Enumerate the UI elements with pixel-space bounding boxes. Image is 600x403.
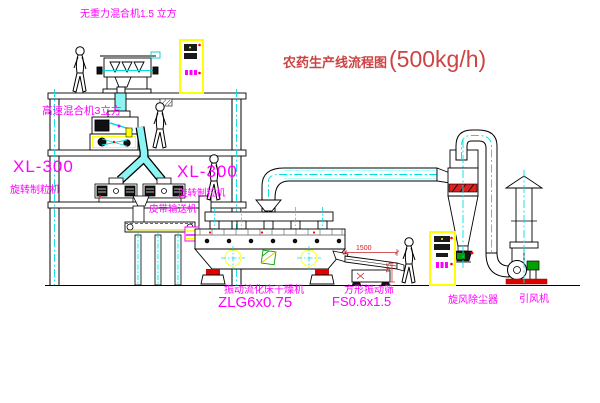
control-cabinet-ground: [430, 232, 455, 285]
label-fan: 引风机: [519, 295, 549, 305]
title-text: 农药生产线流程图: [283, 55, 387, 70]
title-capacity: (500kg/h): [389, 46, 486, 72]
label-granulator-right-model: XL-300: [177, 163, 238, 180]
label-belt-conveyor: 皮带输送机: [149, 205, 197, 215]
label-gravity-mixer: 无重力混合机1.5 立方: [80, 10, 177, 20]
dimension-sieve-height: 541: [384, 263, 390, 273]
label-dryer-model: ZLG6x0.75: [218, 295, 292, 310]
gravity-mixer-drawing: [97, 52, 160, 93]
person-figure-ground: [402, 238, 415, 283]
fluid-bed-dryer-drawing: [195, 207, 345, 284]
label-cyclone: 旋风除尘器: [448, 296, 498, 306]
label-high-speed-mixer: 高速混合机3立方: [42, 106, 121, 117]
exhaust-duct-drawing: [256, 168, 450, 212]
dimension-sieve-length: 1500: [356, 245, 372, 252]
label-sieve-model: FS0.6x1.5: [332, 295, 391, 308]
sieve-drawing: [333, 249, 404, 285]
label-granulator-left-name: 旋转制粒机: [10, 186, 60, 196]
process-flow-drawing: 农药生产线流程图(500kg/h) 无重力混合机1.5 立方 高速混合机3立方 …: [0, 0, 600, 403]
drawing-title: 农药生产线流程图(500kg/h): [283, 46, 486, 73]
granulator-discharge-chute: [133, 196, 149, 223]
control-cabinet-roof: [180, 40, 203, 93]
person-figure-roof: [73, 47, 86, 92]
granulator-left-drawing: [95, 178, 137, 202]
label-granulator-right-name: 旋转制粒机: [178, 189, 226, 199]
label-granulator-left-model: XL-300: [13, 158, 74, 175]
person-figure-floor2: [153, 103, 166, 148]
support-columns: [135, 233, 181, 285]
